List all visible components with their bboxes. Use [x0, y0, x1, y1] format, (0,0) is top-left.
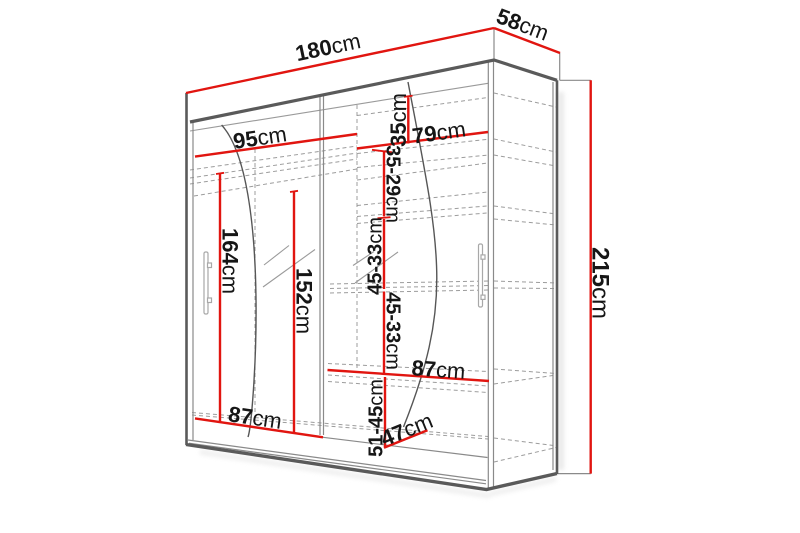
svg-text:215cm: 215cm	[587, 247, 614, 319]
svg-text:164cm: 164cm	[218, 228, 243, 294]
svg-text:35cm: 35cm	[386, 93, 411, 147]
svg-text:35-29cm: 35-29cm	[382, 145, 404, 223]
svg-text:45-33cm: 45-33cm	[382, 292, 404, 370]
svg-text:152cm: 152cm	[292, 268, 317, 334]
svg-text:87cm: 87cm	[411, 355, 466, 384]
svg-text:45-33cm: 45-33cm	[365, 217, 387, 295]
